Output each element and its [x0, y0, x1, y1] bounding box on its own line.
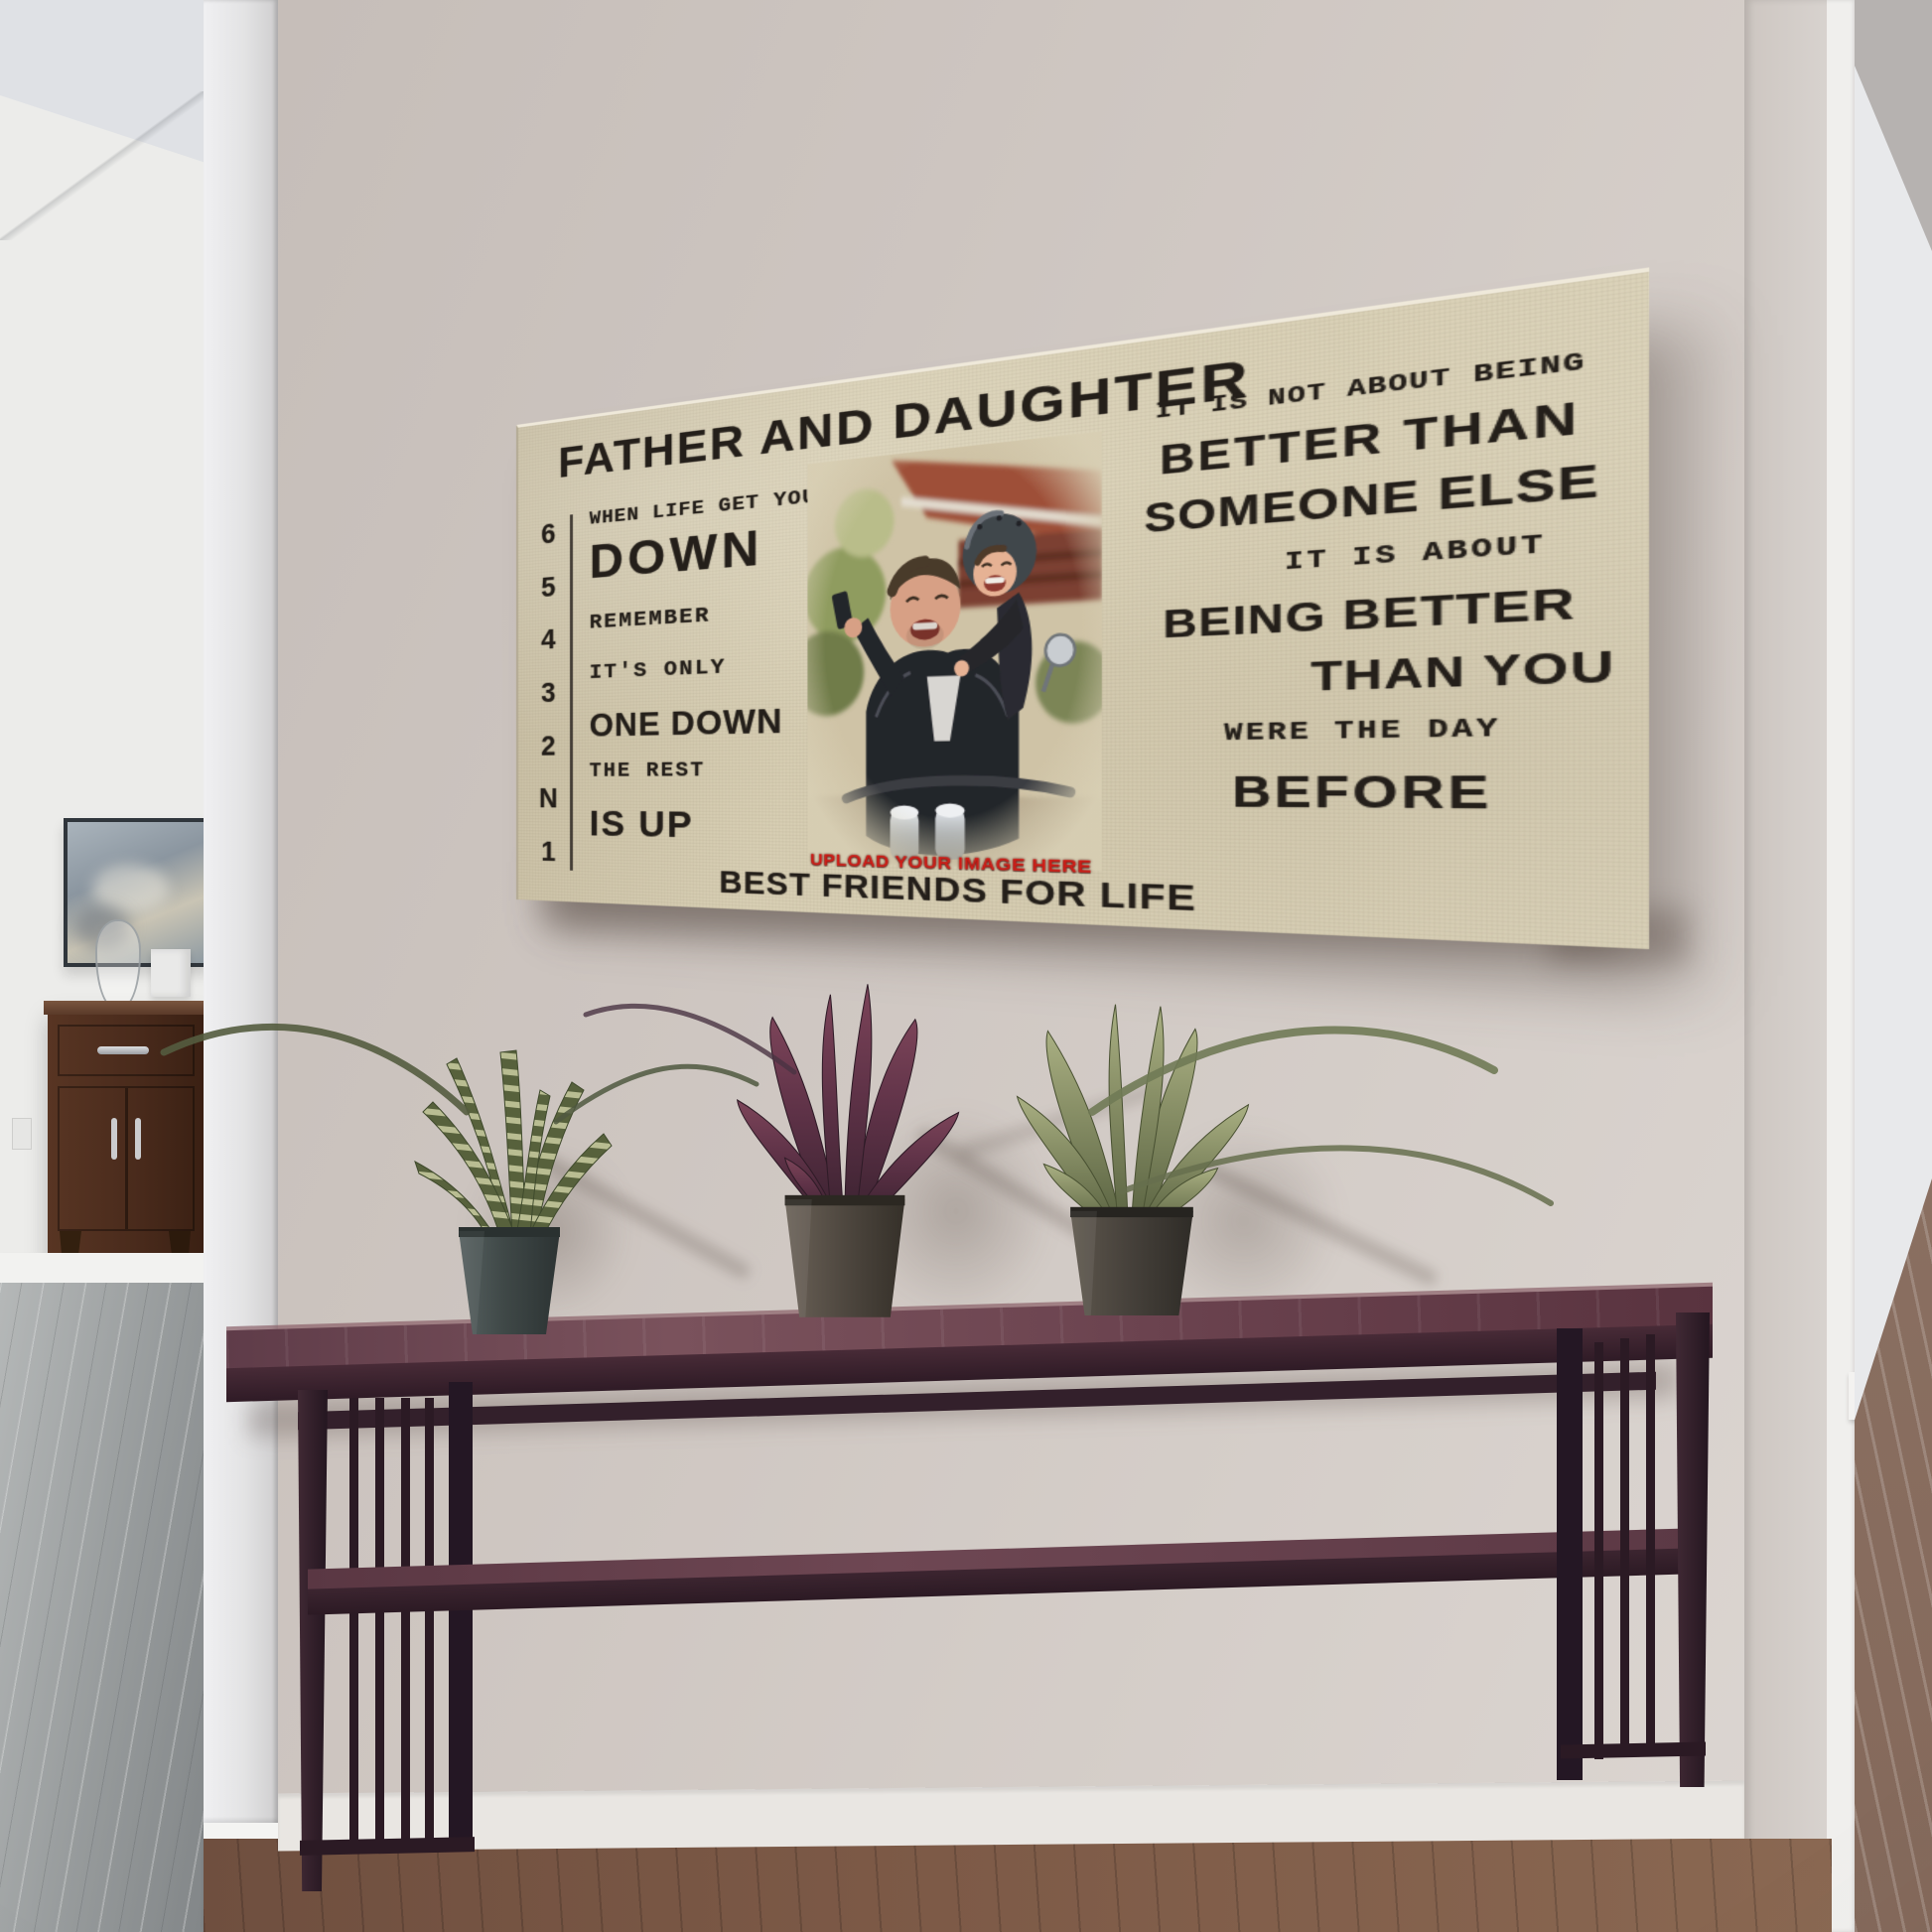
table-slat	[401, 1398, 410, 1851]
scene: FATHER AND DAUGHTER 6 5 4 3 2 N 1 WHEN L…	[0, 0, 1932, 1932]
potted-plant-purple-agave	[721, 953, 969, 1346]
table-slat	[375, 1398, 384, 1851]
table-bottom-rail-left	[300, 1837, 475, 1856]
table-leg-front-right	[1676, 1312, 1710, 1787]
table-leg-rear-left	[449, 1382, 473, 1851]
potted-plant-zebra	[389, 1005, 627, 1362]
table-slat	[1594, 1342, 1603, 1759]
potted-plant-green-agave	[999, 949, 1265, 1346]
table-slat	[1620, 1338, 1629, 1755]
table-leg-front-left	[298, 1390, 328, 1891]
table-slat	[1646, 1334, 1655, 1753]
table-slat	[425, 1398, 434, 1851]
table-slat	[349, 1398, 358, 1851]
green-agave	[999, 949, 1265, 1346]
purple-agave	[721, 953, 969, 1346]
table-leg-rear-right	[1557, 1328, 1583, 1780]
zebra-succulent	[389, 1005, 627, 1362]
